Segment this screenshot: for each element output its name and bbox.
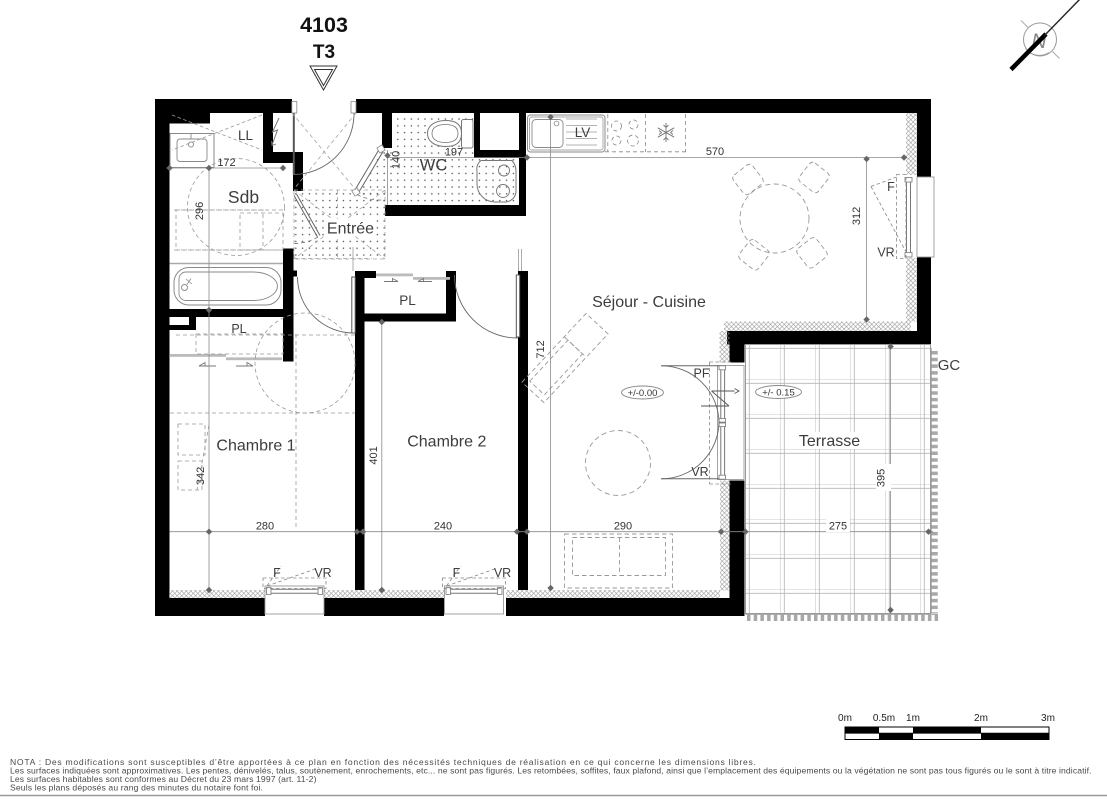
svg-text:296: 296: [194, 202, 206, 220]
svg-text:Terrasse: Terrasse: [799, 433, 860, 450]
svg-text:Chambre 2: Chambre 2: [407, 434, 486, 451]
svg-text:275: 275: [829, 521, 847, 533]
svg-text:2m: 2m: [974, 713, 988, 724]
svg-text:4103: 4103: [300, 13, 348, 37]
svg-text:342: 342: [195, 467, 207, 485]
svg-text:WC: WC: [420, 157, 448, 175]
svg-text:Séjour - Cuisine: Séjour - Cuisine: [592, 294, 706, 311]
svg-text:F: F: [273, 566, 281, 580]
svg-text:Seuls les plans déposés au ran: Seuls les plans déposés au rang des minu…: [10, 783, 263, 793]
svg-text:Sdb: Sdb: [228, 187, 259, 207]
svg-text:240: 240: [434, 521, 452, 533]
svg-text:312: 312: [851, 207, 863, 225]
svg-text:290: 290: [614, 521, 632, 533]
svg-text:570: 570: [706, 146, 724, 158]
svg-text:140: 140: [391, 151, 403, 169]
svg-text:+/- 0.15: +/- 0.15: [762, 387, 794, 398]
svg-text:T3: T3: [313, 42, 335, 63]
svg-text:0m: 0m: [838, 713, 852, 724]
svg-text:VR: VR: [877, 246, 894, 260]
svg-text:F: F: [887, 180, 895, 194]
svg-text:Chambre 1: Chambre 1: [216, 438, 295, 455]
svg-text:+/-0.00: +/-0.00: [628, 388, 658, 399]
svg-text:F: F: [453, 566, 461, 580]
svg-text:0.5m: 0.5m: [873, 713, 895, 724]
svg-text:PF: PF: [694, 367, 710, 381]
svg-text:197: 197: [445, 147, 463, 159]
svg-text:395: 395: [876, 469, 888, 487]
svg-text:VR: VR: [494, 566, 511, 580]
svg-text:LL: LL: [238, 128, 254, 143]
svg-text:Entrée: Entrée: [327, 221, 374, 238]
svg-text:GC: GC: [938, 357, 961, 374]
svg-text:PL: PL: [231, 322, 246, 336]
svg-text:1m: 1m: [906, 713, 920, 724]
svg-text:3m: 3m: [1041, 713, 1055, 724]
svg-text:401: 401: [368, 446, 380, 464]
svg-text:LV: LV: [575, 125, 591, 140]
svg-text:172: 172: [217, 157, 235, 169]
svg-text:712: 712: [535, 340, 547, 358]
svg-text:280: 280: [256, 521, 274, 533]
svg-text:PL: PL: [399, 293, 416, 308]
svg-text:VR: VR: [691, 465, 708, 479]
svg-text:VR: VR: [314, 566, 331, 580]
